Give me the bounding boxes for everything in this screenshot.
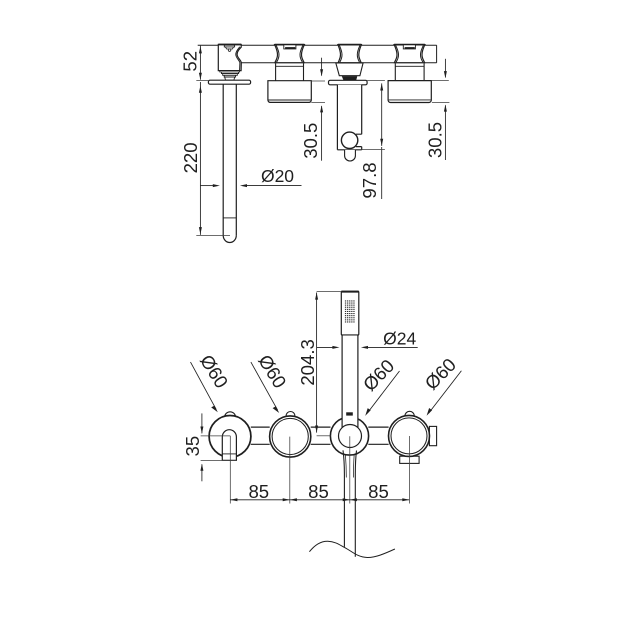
svg-text:85: 85 — [248, 481, 269, 502]
svg-text:52: 52 — [180, 51, 201, 72]
svg-text:30.5: 30.5 — [300, 123, 321, 159]
svg-text:35: 35 — [182, 436, 203, 457]
svg-text:85: 85 — [308, 481, 329, 502]
svg-text:97.8: 97.8 — [359, 162, 380, 198]
svg-text:204.3: 204.3 — [297, 339, 318, 386]
svg-text:220: 220 — [180, 142, 201, 173]
svg-text:Ø20: Ø20 — [261, 166, 294, 186]
svg-text:Ø24: Ø24 — [383, 329, 416, 349]
svg-text:85: 85 — [368, 481, 389, 502]
svg-text:30.5: 30.5 — [424, 122, 445, 158]
